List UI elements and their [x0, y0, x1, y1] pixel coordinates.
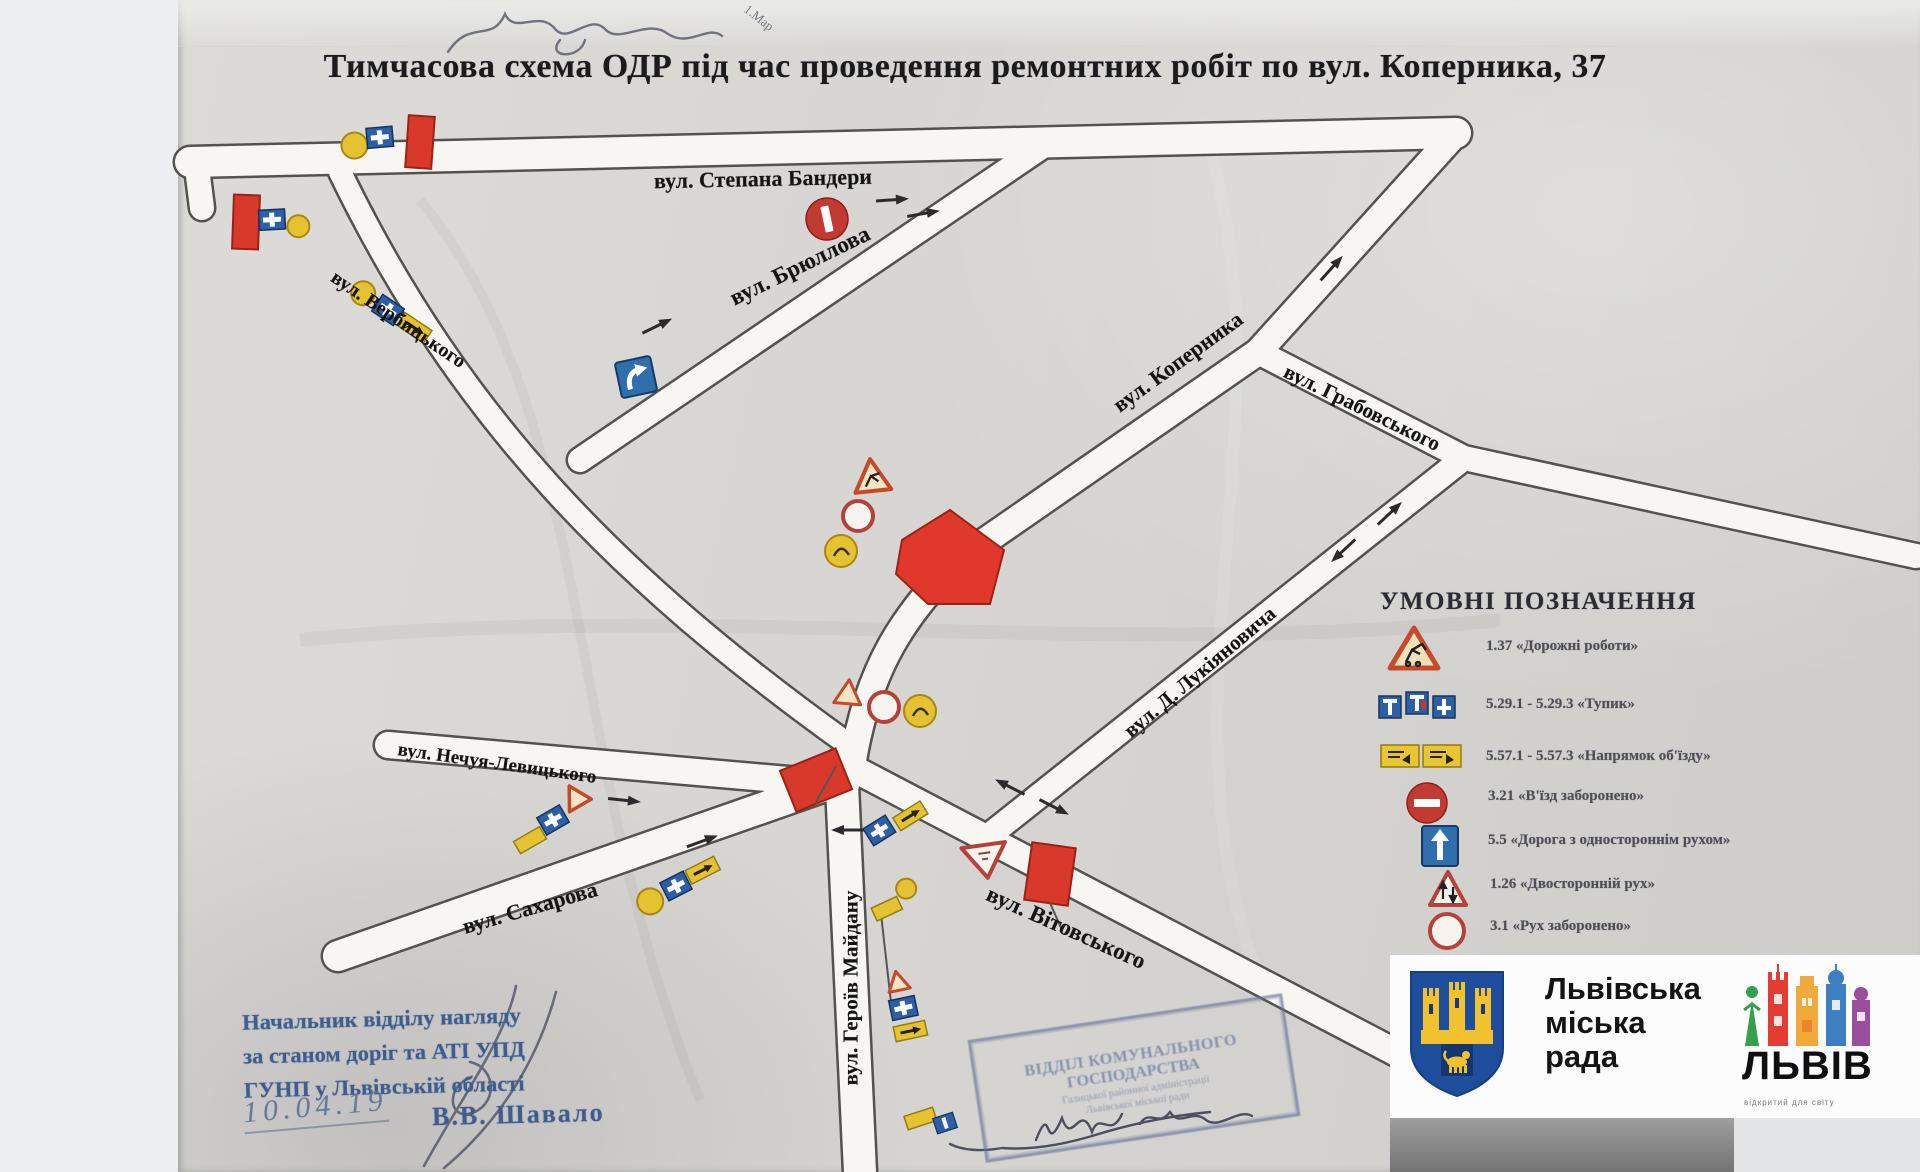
- legend-title: УМОВНІ ПОЗНАЧЕННЯ: [1380, 588, 1697, 616]
- page-title: Тимчасова схема ОДР під час проведення р…: [215, 48, 1715, 86]
- one-way-road-sign-icon: [1420, 824, 1460, 868]
- lviv-brand-towers-icon: [1742, 964, 1878, 1048]
- green-figure: [1744, 986, 1760, 1046]
- blue-tower: [1826, 964, 1846, 1046]
- barrier-left: [232, 195, 260, 250]
- legend: УМОВНІ ПОЗНАЧЕННЯ 1.37 «Дорожні роботи» …: [1378, 588, 1748, 988]
- street-label-bandery: вул. Степана Бандери: [654, 164, 872, 195]
- sign-cluster-heroiv-top: [866, 875, 923, 921]
- approval-signed-by: В.В. Шавало: [432, 1098, 605, 1133]
- legend-item-one-way: 5.5 «Дорога з одностороннім рухом»: [1488, 832, 1730, 849]
- dead-end-signs-icon: [1378, 684, 1458, 730]
- legend-item-no-movement: 3.1 «Рух заборонено»: [1490, 918, 1631, 935]
- legend-item-dead-end: 5.29.1 - 5.29.3 «Тупик»: [1486, 696, 1635, 713]
- council-logo-text: Львівська міська рада: [1545, 972, 1701, 1074]
- sign-cluster-heroiv-bottom: [904, 1102, 957, 1142]
- legend-item-road-works: 1.37 «Дорожні роботи»: [1486, 638, 1638, 655]
- detour-direction-signs-icon: [1380, 740, 1462, 774]
- legend-item-two-way: 1.26 «Двосторонній рух»: [1490, 876, 1655, 893]
- purple-tower: [1852, 987, 1870, 1046]
- one-way-sign-icon: [615, 356, 658, 399]
- no-entry-sign-icon: [1404, 780, 1450, 826]
- street-label-heroiv-maidanu: вул. Героїв Майдану: [839, 891, 864, 1086]
- lviv-brand-tagline: відкритий для світу: [1744, 1098, 1835, 1107]
- two-way-traffic-sign-icon: [1428, 868, 1468, 910]
- sign-cluster-kopernyka: [825, 457, 891, 567]
- barrier-top-1: [405, 115, 435, 169]
- legend-item-no-entry: 3.21 «В'їзд заборонено»: [1488, 788, 1644, 805]
- lviv-coat-of-arms-icon: [1405, 966, 1509, 1102]
- lviv-brand-wordmark: ЛЬВІВ: [1742, 1044, 1873, 1089]
- footer-strip-light: [1734, 1118, 1920, 1172]
- red-tower: [1768, 964, 1788, 1046]
- sign-cluster-left: [259, 208, 310, 240]
- no-movement-sign-icon: [1426, 910, 1468, 952]
- legend-item-detour: 5.57.1 - 5.57.3 «Напрямок об'їзду»: [1486, 748, 1711, 765]
- road-works-sign-icon: [1386, 624, 1442, 672]
- barrier-vitovskoho: [1024, 842, 1076, 906]
- orange-tower: [1796, 976, 1818, 1046]
- sign-cluster-nechuya: [503, 780, 597, 854]
- footer-strip-dark: [1390, 1118, 1734, 1172]
